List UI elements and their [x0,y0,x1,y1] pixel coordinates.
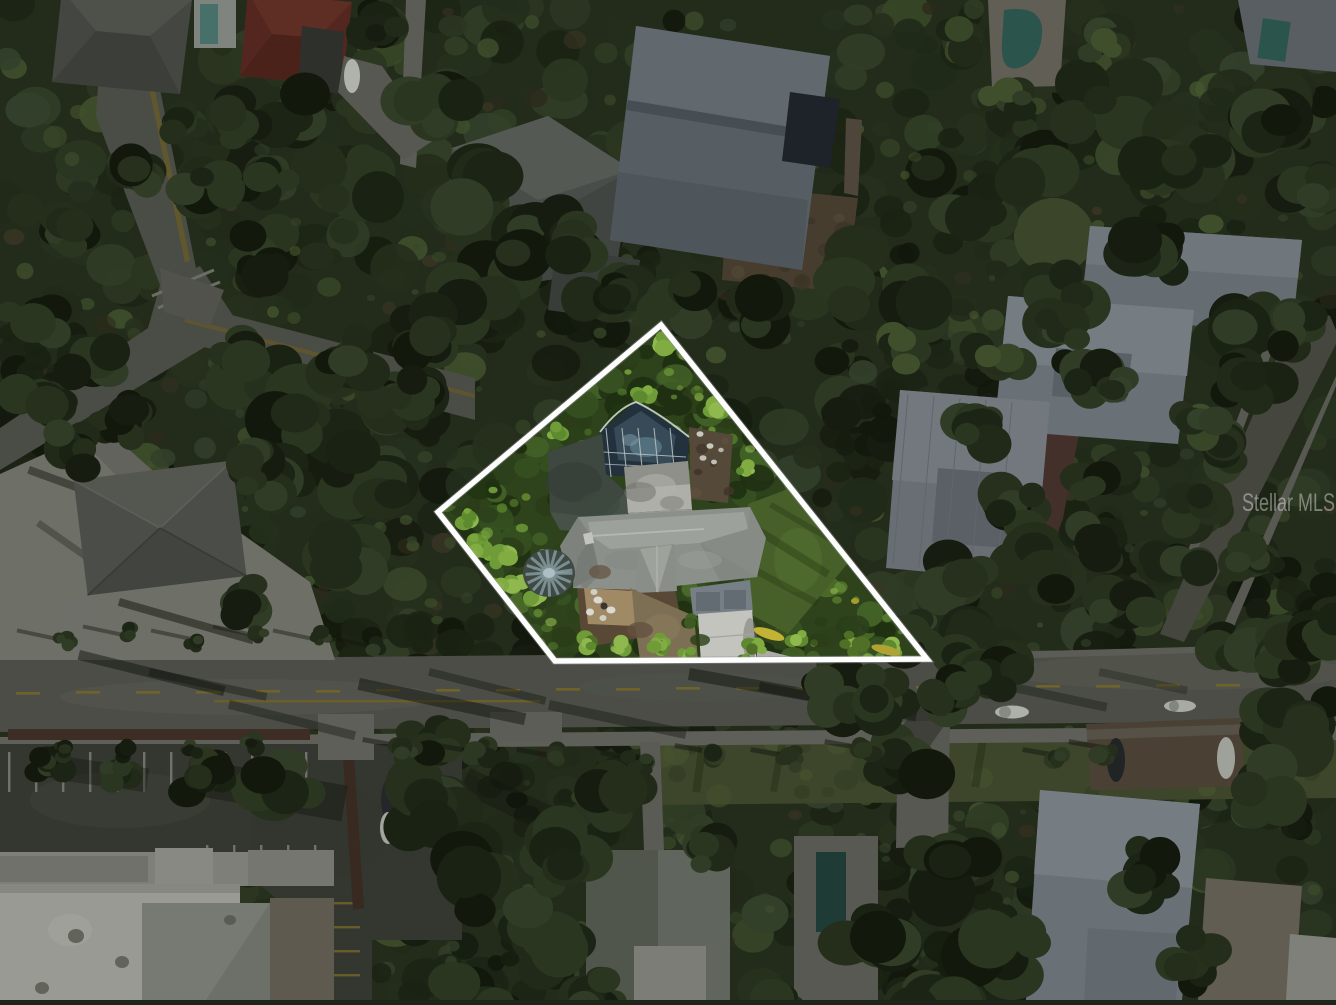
svg-text:Stellar MLS: Stellar MLS [1242,488,1335,517]
